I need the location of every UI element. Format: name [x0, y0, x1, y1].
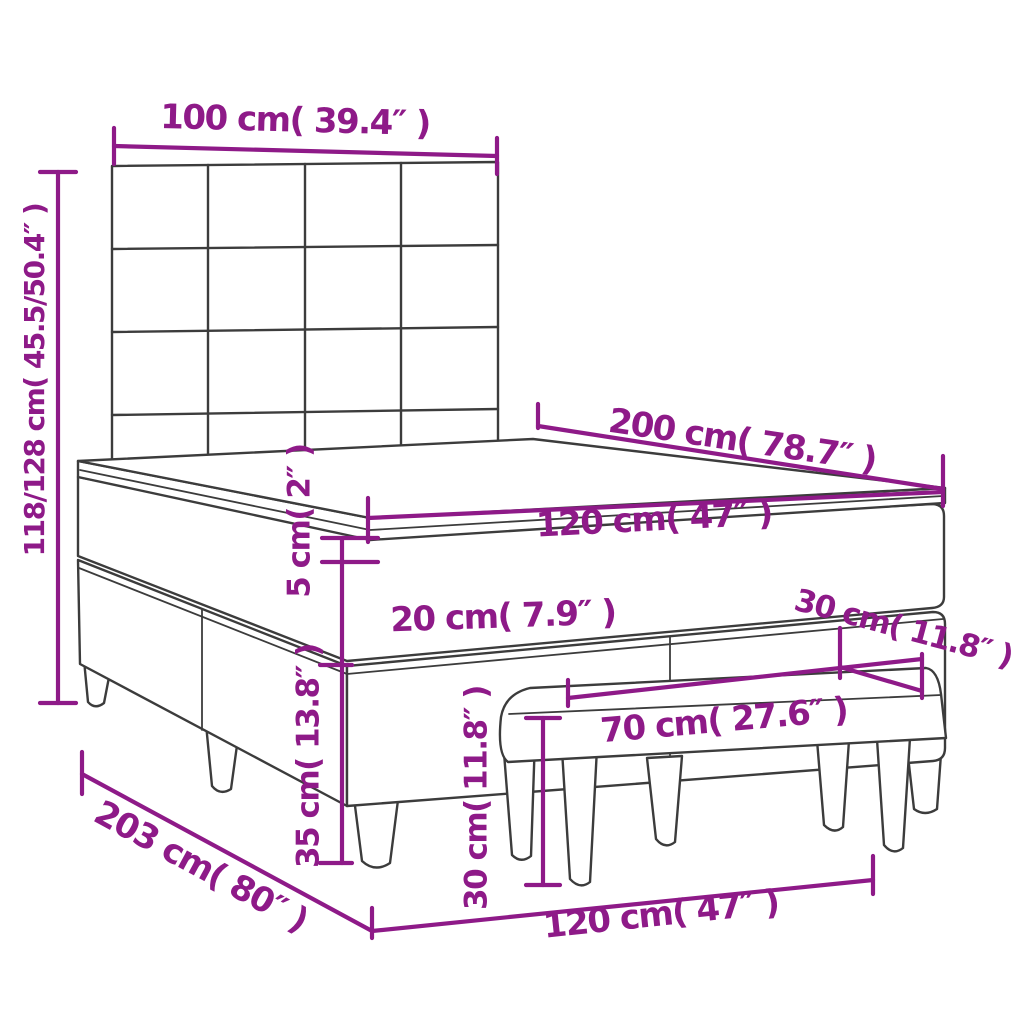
label-topper-thickness: 5 cm( 2″ ): [282, 444, 318, 597]
label-total-length: 203 cm( 80″ ): [87, 793, 314, 941]
dim-line: [82, 774, 372, 931]
product-dimension-diagram: 100 cm( 39.4″ ) 118/128 cm( 45.5/50.4″ )…: [0, 0, 1024, 1024]
label-headboard-width: 100 cm( 39.4″ ): [160, 97, 431, 144]
headboard-drawing: [112, 162, 498, 470]
dim-line: [114, 146, 497, 156]
label-bed-width-floor: 120 cm( 47″ ): [541, 882, 780, 946]
label-base-height: 35 cm( 13.8″ ): [291, 644, 327, 868]
label-bed-height: 118/128 cm( 45.5/50.4″ ): [18, 204, 51, 557]
label-mattress-thickness: 20 cm( 7.9″ ): [390, 593, 617, 641]
label-bench-height: 30 cm( 11.8″ ): [459, 686, 495, 910]
bench-leg: [562, 748, 597, 885]
bench-leg: [647, 756, 682, 845]
bed-diagram-canvas: 100 cm( 39.4″ ) 118/128 cm( 45.5/50.4″ )…: [0, 0, 1024, 1024]
bed-leg: [354, 798, 398, 868]
